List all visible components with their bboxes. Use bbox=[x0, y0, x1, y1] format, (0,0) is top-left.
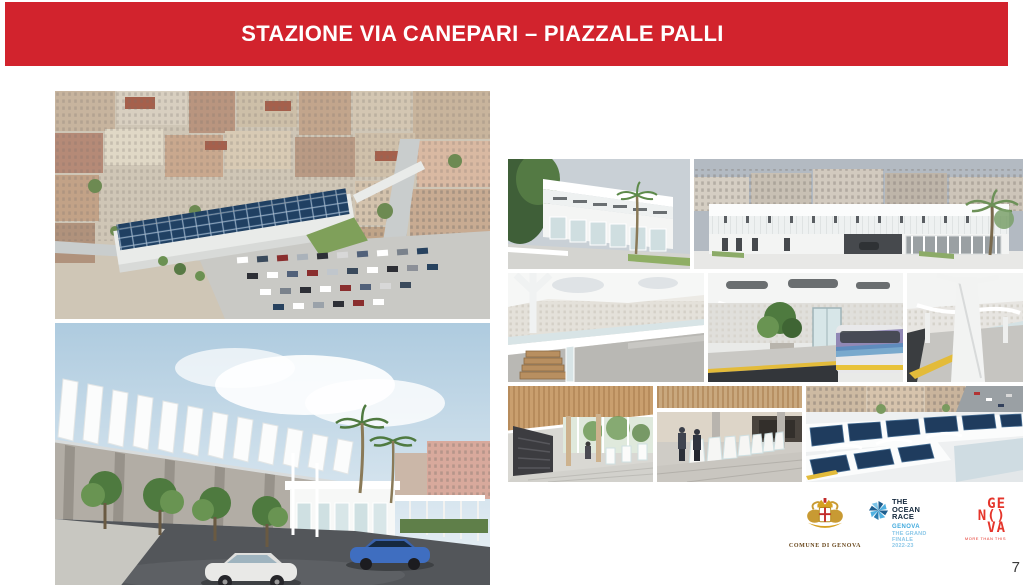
logo-comune-di-genova: COMUNE DI GENOVA bbox=[788, 498, 862, 549]
comune-di-genova-caption: COMUNE DI GENOVA bbox=[788, 543, 862, 549]
ocean-race-pinwheel-icon bbox=[868, 500, 889, 521]
logo-genova-more-than-this: GE N() VA MORE THAN THIS bbox=[954, 498, 1006, 541]
ocean-race-subtitle: GENOVA THE GRAND FINALE 2022-23 bbox=[892, 524, 930, 549]
concourse-illustration bbox=[508, 273, 704, 382]
ocean-race-years: 2022-23 bbox=[892, 543, 930, 549]
render-concourse bbox=[508, 273, 704, 382]
render-platform-canopy bbox=[907, 273, 1023, 382]
render-platform-tram bbox=[708, 273, 903, 382]
logo-the-ocean-race: THE OCEAN RACE GENOVA THE GRAND FINALE 2… bbox=[868, 498, 930, 549]
render-facade-corner bbox=[508, 159, 690, 269]
slide-header: STAZIONE VIA CANEPARI – PIAZZALE PALLI bbox=[5, 2, 1008, 66]
render-hall-wood bbox=[508, 386, 653, 482]
turnstiles-illustration bbox=[657, 386, 802, 482]
render-aerial-view bbox=[55, 91, 490, 319]
genova-wordmark: GE N() VA bbox=[954, 498, 1006, 534]
solar-roof-illustration bbox=[806, 386, 1023, 482]
render-street-view bbox=[55, 323, 490, 585]
facade-corner-illustration bbox=[508, 159, 690, 269]
genova-tagline: MORE THAN THIS bbox=[954, 536, 1006, 541]
street-view-illustration bbox=[55, 323, 490, 585]
aerial-view-illustration bbox=[55, 91, 490, 319]
partner-logos: COMUNE DI GENOVA TH bbox=[788, 498, 1020, 560]
render-elevation bbox=[694, 159, 1023, 269]
slide: STAZIONE VIA CANEPARI – PIAZZALE PALLI bbox=[0, 0, 1024, 585]
render-turnstiles bbox=[657, 386, 802, 482]
render-solar-roof bbox=[806, 386, 1023, 482]
hall-wood-illustration bbox=[508, 386, 653, 482]
ocean-race-grand-finale: THE GRAND FINALE bbox=[892, 531, 930, 543]
platform-canopy-illustration bbox=[907, 273, 1023, 382]
ocean-race-wordmark: THE OCEAN RACE bbox=[892, 498, 920, 521]
page-title: STAZIONE VIA CANEPARI – PIAZZALE PALLI bbox=[241, 21, 723, 47]
ocean-race-line-3: RACE bbox=[892, 513, 920, 521]
platform-tram-illustration bbox=[708, 273, 903, 382]
page-number: 7 bbox=[1004, 559, 1020, 576]
comune-di-genova-crest-icon bbox=[800, 498, 850, 536]
elevation-illustration bbox=[694, 159, 1023, 269]
